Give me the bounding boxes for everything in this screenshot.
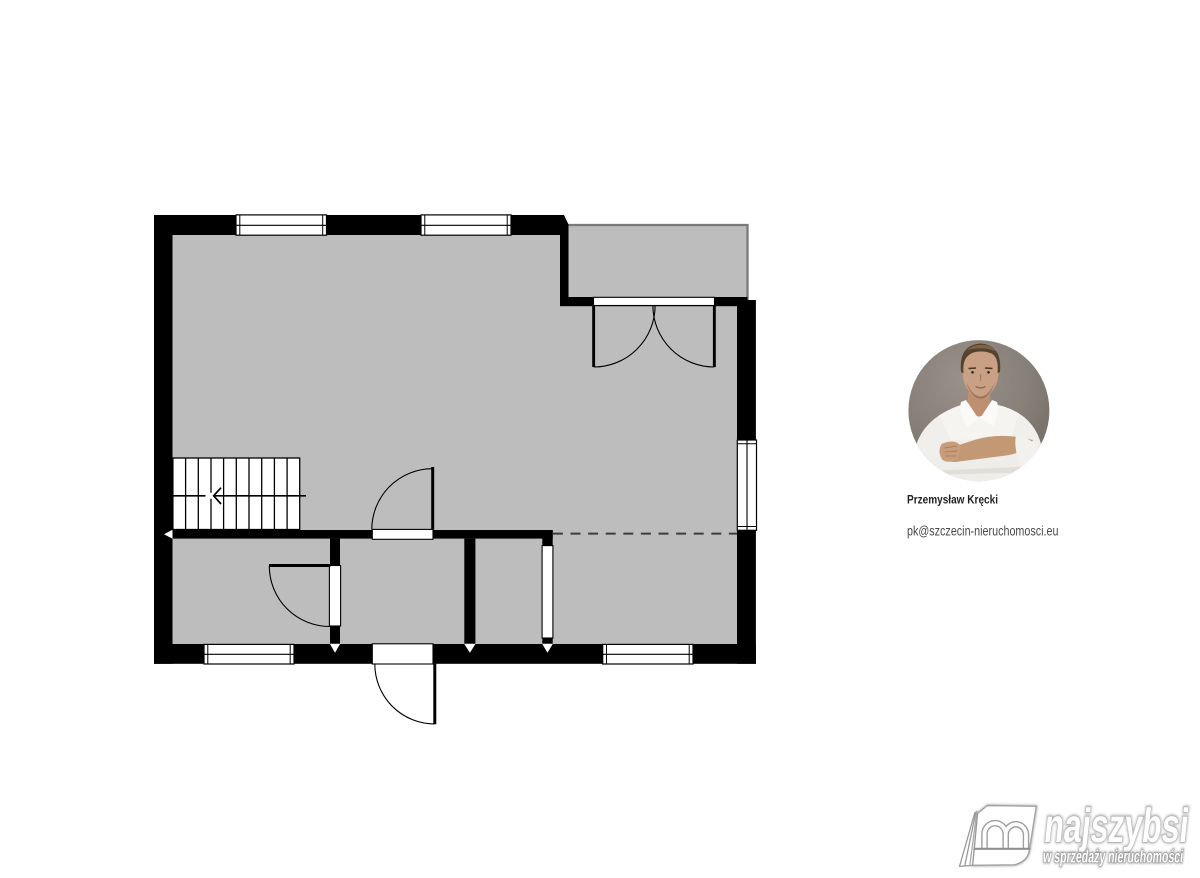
svg-text:pk@szczecin-nieruchomosci.eu: pk@szczecin-nieruchomosci.eu xyxy=(907,522,1059,538)
svg-text:najszybsi: najszybsi xyxy=(1042,799,1192,853)
svg-text:w sprzedaży nieruchomości: w sprzedaży nieruchomości xyxy=(1042,847,1185,867)
svg-text:Przemysław Kręcki: Przemysław Kręcki xyxy=(907,493,998,507)
